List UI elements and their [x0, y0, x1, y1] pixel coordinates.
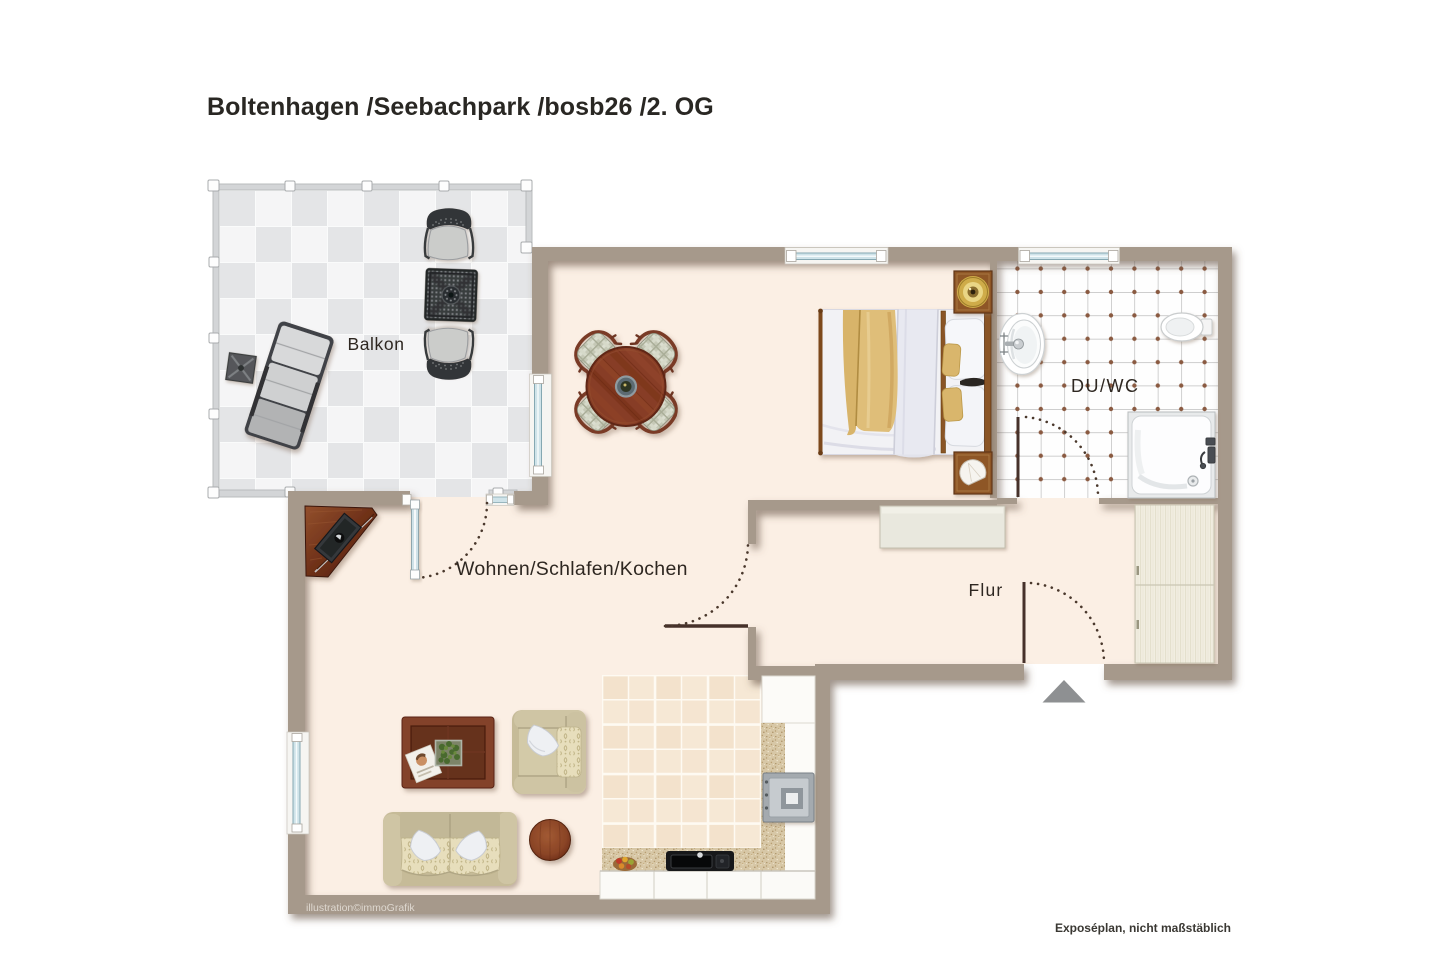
svg-text:DU/WC: DU/WC [1071, 376, 1140, 396]
svg-text:Boltenhagen /Seebachpark /bosb: Boltenhagen /Seebachpark /bosb26 /2. OG [207, 93, 714, 121]
svg-text:Flur: Flur [969, 580, 1004, 600]
svg-text:illustration©immoGrafik: illustration©immoGrafik [306, 902, 415, 914]
svg-text:Wohnen/Schlafen/Kochen: Wohnen/Schlafen/Kochen [456, 558, 688, 580]
svg-text:Exposéplan, nicht maßstäblich: Exposéplan, nicht maßstäblich [1055, 921, 1231, 935]
svg-text:Balkon: Balkon [347, 334, 404, 354]
